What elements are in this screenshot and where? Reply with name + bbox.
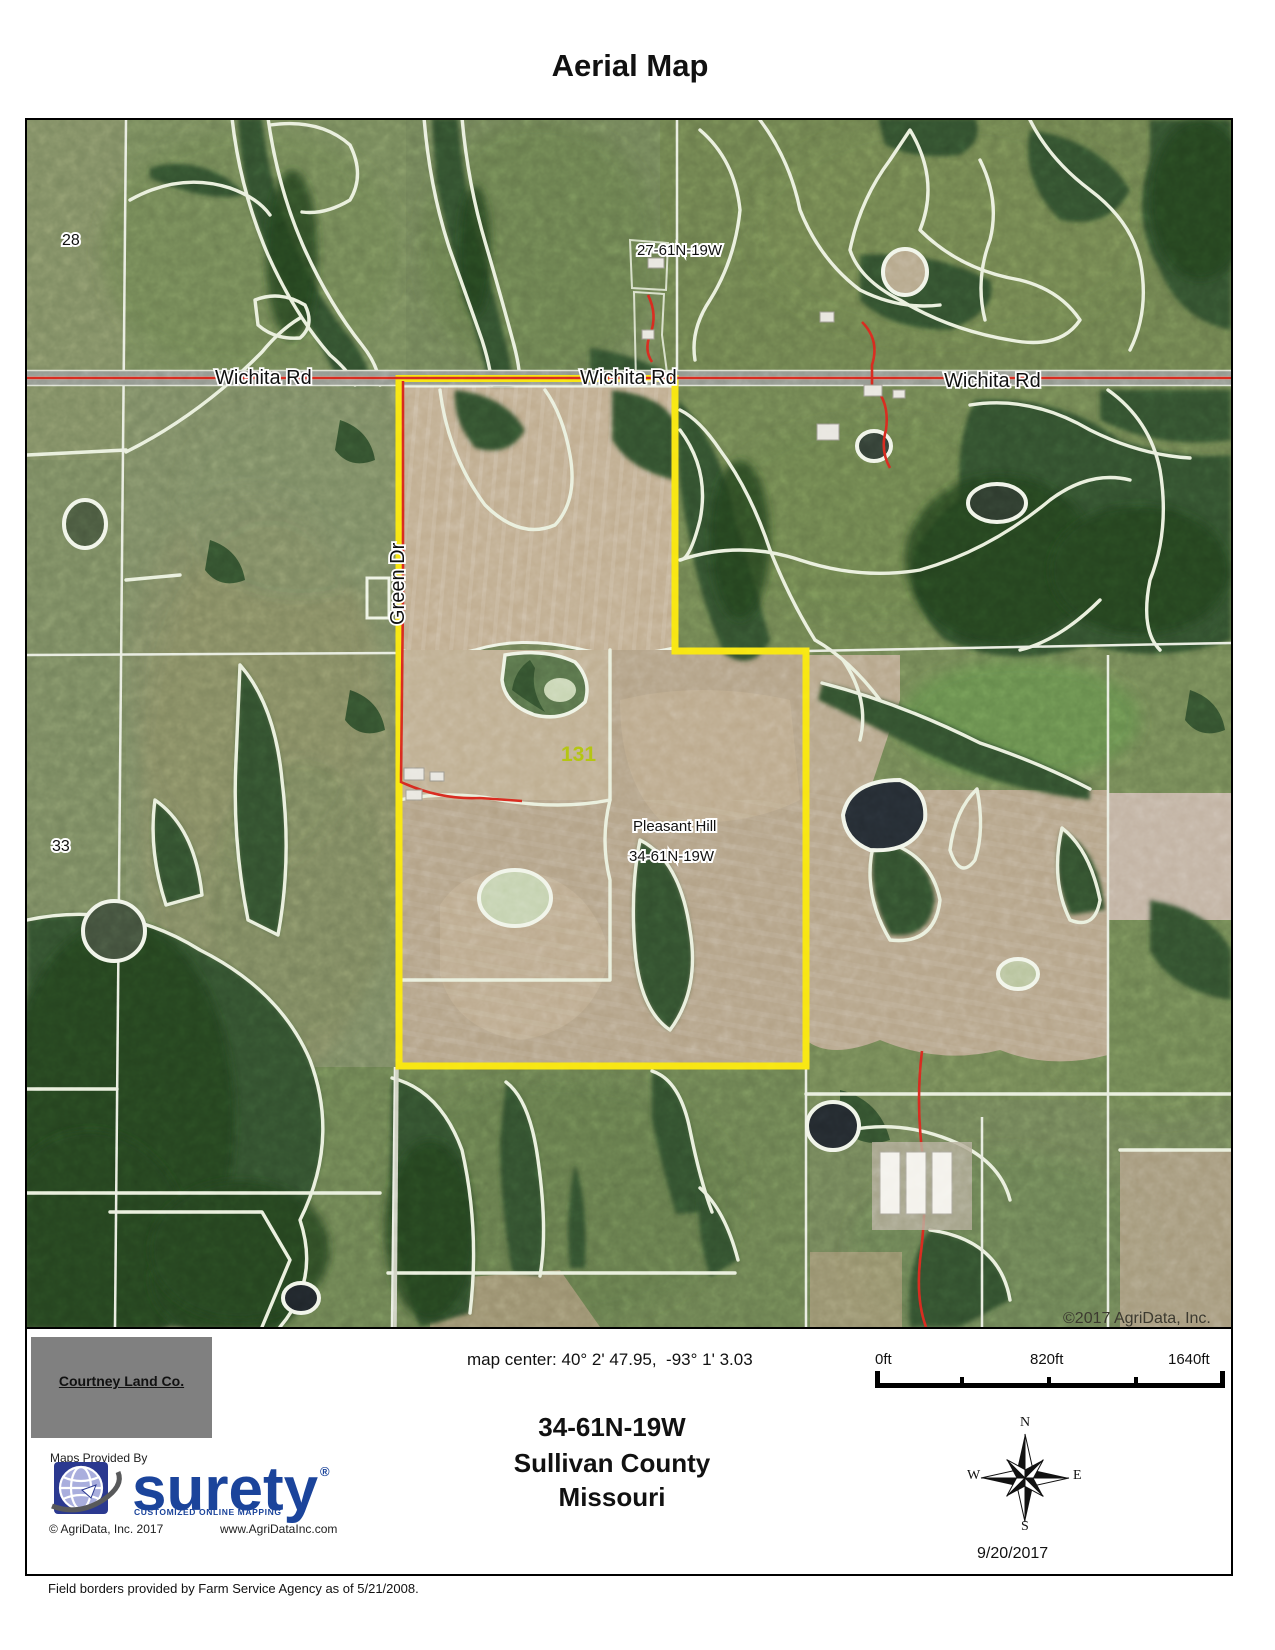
svg-text:Green Dr: Green Dr <box>387 542 409 625</box>
svg-text:131: 131 <box>561 743 596 766</box>
svg-text:28: 28 <box>62 232 80 249</box>
svg-text:Wichita Rd: Wichita Rd <box>215 367 312 389</box>
svg-text:®: ® <box>320 1464 330 1479</box>
svg-text:CUSTOMIZED ONLINE MAPPING: CUSTOMIZED ONLINE MAPPING <box>134 1507 282 1517</box>
svg-text:Wichita Rd: Wichita Rd <box>580 367 677 389</box>
svg-text:34-61N-19W: 34-61N-19W <box>629 848 715 865</box>
svg-text:27-61N-19W: 27-61N-19W <box>637 242 723 259</box>
svg-text:33: 33 <box>52 838 70 855</box>
svg-text:©2017 AgriData, Inc.: ©2017 AgriData, Inc. <box>1063 1310 1211 1327</box>
svg-text:Wichita Rd: Wichita Rd <box>944 370 1041 392</box>
svg-text:Pleasant Hill: Pleasant Hill <box>633 818 716 835</box>
